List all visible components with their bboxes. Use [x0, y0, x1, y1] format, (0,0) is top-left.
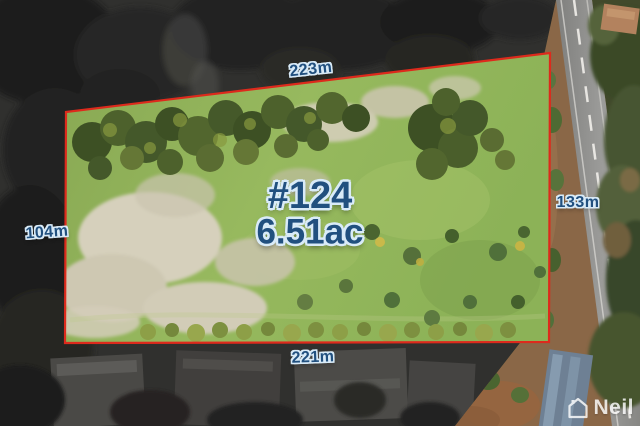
property-aerial-image: 223m 221m 104m 133m #124 6.51ac Neil	[0, 0, 640, 426]
watermark-text: Neil	[593, 396, 634, 420]
watermark: Neil	[566, 396, 634, 420]
house-o-icon	[566, 396, 590, 420]
dimension-label-right: 133m	[557, 194, 600, 212]
lot-size-label: 6.51ac	[256, 215, 363, 250]
dimension-label-bottom: 221m	[291, 348, 335, 367]
lot-number-label: #124	[268, 177, 353, 215]
dimension-label-left: 104m	[25, 223, 69, 244]
house-roof	[601, 4, 640, 35]
dimmed-houses	[0, 348, 476, 426]
